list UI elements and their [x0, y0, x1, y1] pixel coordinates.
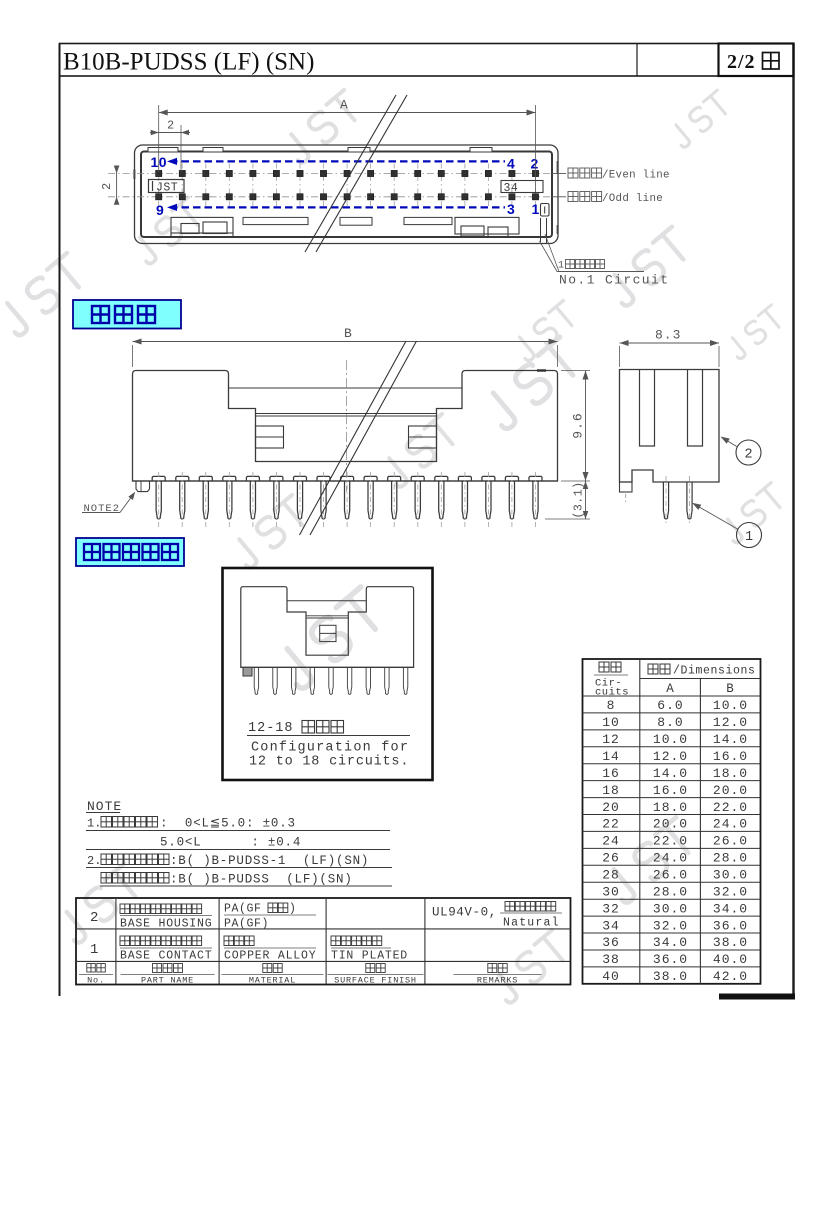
svg-text:38.0: 38.0	[713, 935, 748, 950]
svg-text:BASE HOUSING: BASE HOUSING	[120, 918, 212, 931]
svg-text:20.0: 20.0	[713, 783, 748, 798]
svg-text:SURFACE FINISH: SURFACE FINISH	[334, 976, 417, 986]
svg-text:(3.1): (3.1)	[573, 481, 586, 518]
svg-text:9.6: 9.6	[571, 412, 586, 438]
svg-text:cuits: cuits	[595, 687, 629, 699]
svg-text:10.0: 10.0	[713, 698, 748, 713]
svg-text:12 to 18 circuits.: 12 to 18 circuits.	[249, 755, 409, 770]
svg-text:28.0: 28.0	[653, 884, 688, 899]
svg-text:22.0: 22.0	[653, 834, 688, 849]
svg-text:): )	[289, 903, 296, 916]
svg-text:18.0: 18.0	[713, 766, 748, 781]
svg-text:2: 2	[531, 156, 539, 172]
svg-text:12: 12	[602, 732, 620, 747]
svg-text:28.0: 28.0	[713, 851, 748, 866]
svg-text:1.: 1.	[87, 817, 101, 831]
svg-text:36.0: 36.0	[713, 918, 748, 933]
svg-text:2.: 2.	[87, 854, 101, 868]
svg-text:20.0: 20.0	[653, 817, 688, 832]
svg-text:14.0: 14.0	[653, 766, 688, 781]
svg-text:Configuration for: Configuration for	[251, 741, 409, 756]
svg-text:30.0: 30.0	[653, 901, 688, 916]
svg-text:TIN PLATED: TIN PLATED	[331, 950, 408, 963]
svg-text:26.0: 26.0	[713, 834, 748, 849]
svg-text:6.0: 6.0	[657, 698, 683, 713]
svg-text:PA(GF): PA(GF)	[224, 918, 269, 931]
svg-text:34: 34	[602, 918, 620, 933]
svg-text:38: 38	[602, 952, 620, 967]
svg-text:16.0: 16.0	[653, 783, 688, 798]
svg-text:PA(GF: PA(GF	[224, 903, 262, 916]
svg-text:10.0: 10.0	[653, 732, 688, 747]
svg-text:12-18: 12-18	[248, 721, 294, 736]
svg-text:32: 32	[602, 901, 620, 916]
svg-text:34.0: 34.0	[713, 901, 748, 916]
svg-text:22: 22	[602, 817, 620, 832]
svg-text:8.0: 8.0	[657, 715, 683, 730]
svg-text:32.0: 32.0	[653, 918, 688, 933]
svg-text:BASE CONTACT: BASE CONTACT	[120, 950, 212, 963]
svg-text:1: 1	[558, 261, 564, 272]
svg-text:/Even line: /Even line	[602, 170, 670, 182]
svg-text:B: B	[344, 326, 352, 341]
svg-text:30.0: 30.0	[713, 868, 748, 883]
svg-text:18.0: 18.0	[653, 800, 688, 815]
svg-text:REMARKS: REMARKS	[477, 976, 518, 986]
svg-text:34.0: 34.0	[653, 935, 688, 950]
svg-text:/Dimensions: /Dimensions	[673, 665, 756, 678]
svg-text:8: 8	[607, 698, 616, 713]
svg-text:2: 2	[744, 448, 752, 463]
svg-text:20: 20	[602, 800, 620, 815]
svg-text::B( )B-PUDSS-1 (LF)(SN): :B( )B-PUDSS-1 (LF)(SN)	[170, 854, 369, 868]
svg-text:38.0: 38.0	[653, 969, 688, 984]
svg-text:24: 24	[602, 834, 620, 849]
svg-text:4: 4	[507, 156, 515, 172]
svg-text:36: 36	[602, 935, 620, 950]
svg-text:PART NAME: PART NAME	[141, 976, 194, 986]
svg-text:No.1 Circuit: No.1 Circuit	[559, 273, 669, 288]
svg-text:24.0: 24.0	[653, 851, 688, 866]
svg-text:36.0: 36.0	[653, 952, 688, 967]
svg-text:JST: JST	[156, 182, 178, 195]
svg-text:26: 26	[602, 851, 620, 866]
svg-text:3: 3	[507, 201, 515, 217]
svg-text:12.0: 12.0	[713, 715, 748, 730]
svg-text:/Odd line: /Odd line	[602, 193, 663, 205]
svg-text:8.3: 8.3	[655, 328, 681, 343]
svg-text:9: 9	[156, 202, 164, 218]
svg-text:5.0<L : ±0.4: 5.0<L : ±0.4	[160, 836, 301, 850]
svg-text:A: A	[666, 682, 674, 696]
svg-text:NOTE: NOTE	[87, 799, 122, 814]
svg-text:1: 1	[532, 201, 540, 217]
svg-text:30: 30	[602, 884, 620, 899]
svg-text:14: 14	[602, 749, 620, 764]
svg-text::B( )B-PUDSS (LF)(SN): :B( )B-PUDSS (LF)(SN)	[170, 873, 353, 887]
svg-text:B10B-PUDSS (LF) (SN): B10B-PUDSS (LF) (SN)	[63, 49, 314, 76]
svg-text:28: 28	[602, 868, 620, 883]
svg-text:34: 34	[504, 182, 519, 195]
svg-text:: 0<L≦5.0: ±0.3: : 0<L≦5.0: ±0.3	[160, 817, 296, 831]
svg-text:16.0: 16.0	[713, 749, 748, 764]
svg-text:22.0: 22.0	[713, 800, 748, 815]
svg-text:1: 1	[745, 530, 753, 545]
svg-text:1: 1	[90, 942, 98, 958]
svg-text:26.0: 26.0	[653, 868, 688, 883]
svg-text:12.0: 12.0	[653, 749, 688, 764]
svg-text:42.0: 42.0	[713, 969, 748, 984]
svg-text:COPPER ALLOY: COPPER ALLOY	[224, 950, 316, 963]
svg-text:14.0: 14.0	[713, 732, 748, 747]
svg-text:2: 2	[90, 910, 98, 926]
svg-text:Natural: Natural	[503, 917, 560, 930]
svg-text:2: 2	[167, 119, 174, 133]
svg-text:24.0: 24.0	[713, 817, 748, 832]
svg-text:A: A	[340, 98, 348, 113]
svg-text:18: 18	[602, 783, 620, 798]
svg-text:2: 2	[100, 183, 114, 190]
svg-text:UL94V-0,: UL94V-0,	[432, 906, 497, 920]
svg-text:40.0: 40.0	[713, 952, 748, 967]
svg-text:No.: No.	[87, 976, 105, 986]
svg-text:32.0: 32.0	[713, 884, 748, 899]
svg-text:B: B	[726, 682, 734, 696]
svg-text:16: 16	[602, 766, 620, 781]
svg-text:2/2: 2/2	[727, 51, 756, 73]
svg-text:10: 10	[602, 715, 620, 730]
svg-text:40: 40	[602, 969, 620, 984]
svg-text:NOTE2: NOTE2	[84, 503, 121, 515]
svg-text:MATERIAL: MATERIAL	[249, 976, 296, 986]
